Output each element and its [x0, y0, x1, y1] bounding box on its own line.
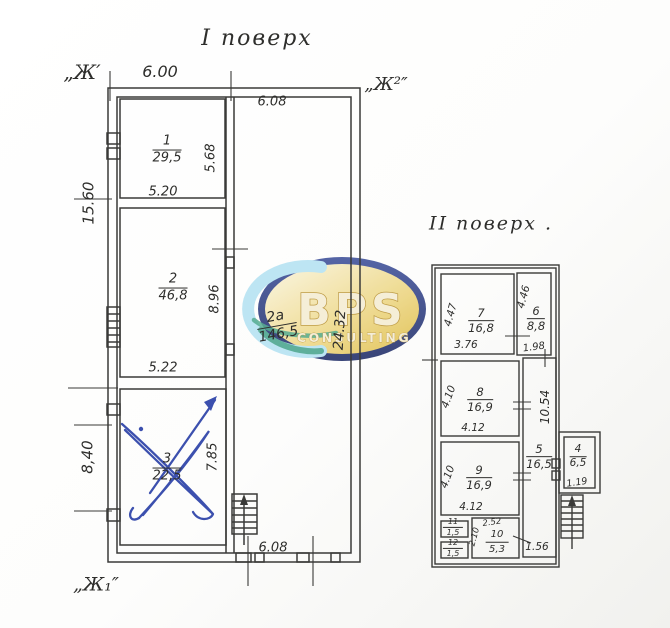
axis-label-bottom-left: „Ж₁″	[73, 576, 119, 595]
door-symbol	[226, 344, 234, 355]
room-area: 16,9	[467, 400, 493, 414]
logo-subtext: CONSULTING	[297, 330, 411, 345]
room-number: 3	[153, 453, 182, 469]
dim-room1-height: 5.68	[205, 144, 218, 173]
room-number: 5	[526, 443, 552, 457]
floor2-room10-label: 10 5,3	[486, 530, 509, 555]
room-number: 10	[486, 530, 509, 543]
floor1-stairs-icon	[232, 494, 257, 545]
room-area: 22,5	[153, 468, 182, 483]
dim-room8-width: 4.12	[461, 423, 484, 434]
dim-room7-width: 3.76	[454, 340, 477, 351]
floor1-title: I поверх	[201, 28, 312, 50]
floor2-room5-label: 5 16,5	[526, 443, 552, 471]
window-symbol	[107, 148, 120, 159]
floor1-room1-label: 1 29,5	[153, 135, 182, 166]
room-number: 6	[527, 305, 545, 319]
room-number: 4	[570, 444, 587, 457]
pen-arrowhead-icon	[204, 396, 217, 411]
dim-hall-height: 24.32	[332, 310, 349, 351]
room-area: 29,5	[153, 150, 182, 165]
dim-room1-width: 5.20	[149, 186, 178, 199]
room-number: 9	[466, 464, 492, 478]
window-symbol	[107, 133, 120, 144]
axis-label-top-right: „Ж²″	[364, 76, 408, 94]
dim-bottom-right: 1.56	[525, 542, 548, 553]
room-number: 11	[443, 518, 463, 528]
room-area: 46,8	[159, 288, 188, 303]
dim-room2-height: 8.96	[209, 285, 222, 314]
room-number: 8	[467, 386, 493, 400]
dim-left-lower: 8,40	[81, 440, 96, 473]
room-number: 7	[468, 307, 494, 321]
floor2-room8-label: 8 16,9	[467, 386, 493, 414]
dim-corridor-height: 10.54	[539, 390, 551, 424]
room-number: 2	[159, 273, 188, 289]
room-area: 5,3	[486, 542, 509, 554]
dim-left-upper: 15.60	[82, 182, 97, 225]
floor2-room6-label: 6 8,8	[527, 305, 545, 333]
window-symbol	[107, 404, 120, 415]
door-symbol	[226, 257, 234, 268]
dim-room3-height: 7.85	[207, 443, 220, 472]
floor2-room12-label: 12 1,5	[443, 539, 463, 559]
room-area: 8,8	[527, 319, 545, 333]
room-area: 1,5	[443, 528, 463, 538]
room-area: 16,9	[466, 478, 492, 492]
logo-wordmark: BPS	[297, 285, 406, 336]
floor1-room3-label: 3 22,5	[153, 453, 182, 484]
room-number: 12	[443, 539, 463, 549]
scanned-floorplan-page: BPS CONSULTING	[0, 0, 670, 628]
window-symbol	[297, 553, 309, 562]
dim-bottom-width: 6.08	[259, 542, 288, 555]
room-area: 6,5	[570, 457, 587, 470]
dim-hall-top-width: 6.08	[258, 96, 287, 109]
room-area: 16,8	[468, 321, 494, 335]
axis-label-top-left: „Ж′	[63, 62, 100, 82]
floor2-room11-label: 11 1,5	[443, 518, 463, 538]
dim-top-width: 6.00	[142, 64, 178, 80]
floor1-room2a-label: 2а 146,5	[254, 306, 299, 346]
floor2-room4-label: 4 6,5	[570, 444, 587, 470]
window-symbol	[236, 553, 251, 562]
floor2-title: II поверх .	[429, 215, 553, 234]
room-area: 1,5	[443, 549, 463, 559]
window-symbol	[331, 553, 340, 562]
floor1-room2-label: 2 46,8	[159, 273, 188, 304]
floor2-room7-label: 7 16,8	[468, 307, 494, 335]
dim-room9-width: 4.12	[459, 502, 482, 513]
floor2-room9-label: 9 16,9	[466, 464, 492, 492]
hatched-window-symbol	[107, 307, 120, 347]
room-number: 1	[153, 135, 182, 151]
dim-room2-width: 5.22	[149, 362, 178, 375]
stairs-up-arrow-icon	[240, 494, 248, 505]
floor2-stairs-icon	[561, 495, 583, 549]
room-area: 16,5	[526, 457, 552, 471]
